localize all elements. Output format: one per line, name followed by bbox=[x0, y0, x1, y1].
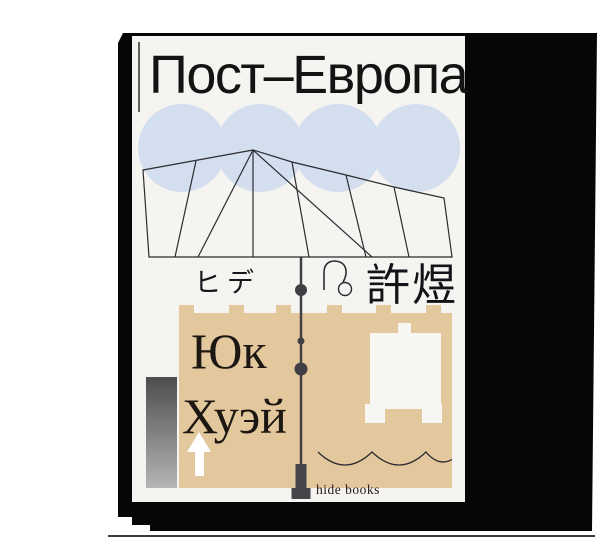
author-first-name-cyrillic: Юк bbox=[191, 326, 267, 376]
book-cover-scene: Пост–Европа bbox=[0, 0, 600, 540]
author-name-katakana: ヒデ bbox=[194, 270, 260, 297]
pole-dot-large bbox=[295, 363, 308, 376]
up-arrow-stem bbox=[195, 451, 204, 476]
author-name-chinese: 許煜 bbox=[366, 264, 458, 308]
pole-dot-small bbox=[298, 338, 305, 345]
book-cover: Пост–Европа bbox=[132, 36, 465, 502]
up-arrow-icon bbox=[187, 432, 211, 452]
hook-ring-icon bbox=[339, 283, 352, 296]
pole-dot-large bbox=[295, 284, 307, 296]
publisher-imprint: hide books bbox=[316, 482, 380, 498]
pole-handle-neck bbox=[296, 464, 307, 490]
shadow-line bbox=[108, 535, 595, 537]
pole-handle-base bbox=[292, 488, 311, 499]
